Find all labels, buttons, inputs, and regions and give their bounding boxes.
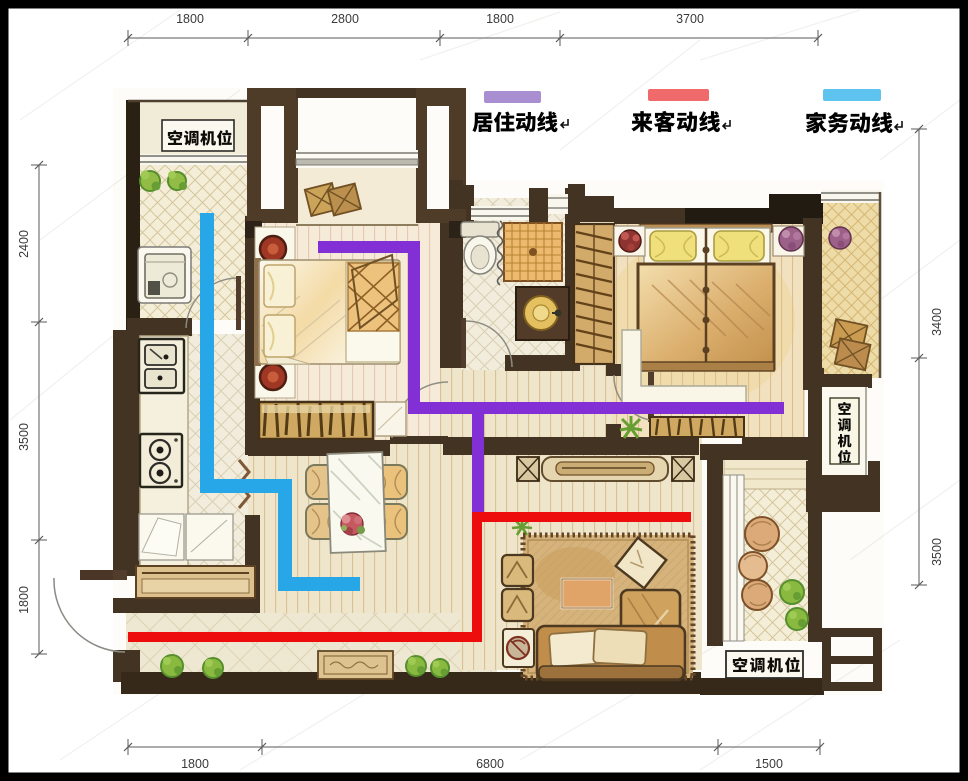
svg-text:3400: 3400: [930, 308, 944, 336]
svg-text:1800: 1800: [17, 586, 31, 614]
svg-text:2800: 2800: [331, 12, 359, 26]
svg-text:3500: 3500: [17, 423, 31, 451]
svg-text:3500: 3500: [930, 538, 944, 566]
svg-text:3700: 3700: [676, 12, 704, 26]
svg-text:1800: 1800: [486, 12, 514, 26]
svg-text:1800: 1800: [176, 12, 204, 26]
svg-text:1500: 1500: [755, 757, 783, 771]
svg-text:1800: 1800: [181, 757, 209, 771]
svg-text:6800: 6800: [476, 757, 504, 771]
svg-text:2400: 2400: [17, 230, 31, 258]
